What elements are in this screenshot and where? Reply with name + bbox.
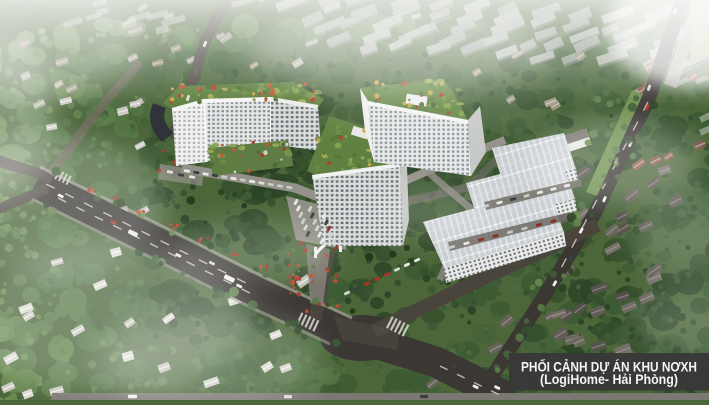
svg-text:(LogiHome- Hải Phòng): (LogiHome- Hải Phòng)	[540, 371, 678, 387]
